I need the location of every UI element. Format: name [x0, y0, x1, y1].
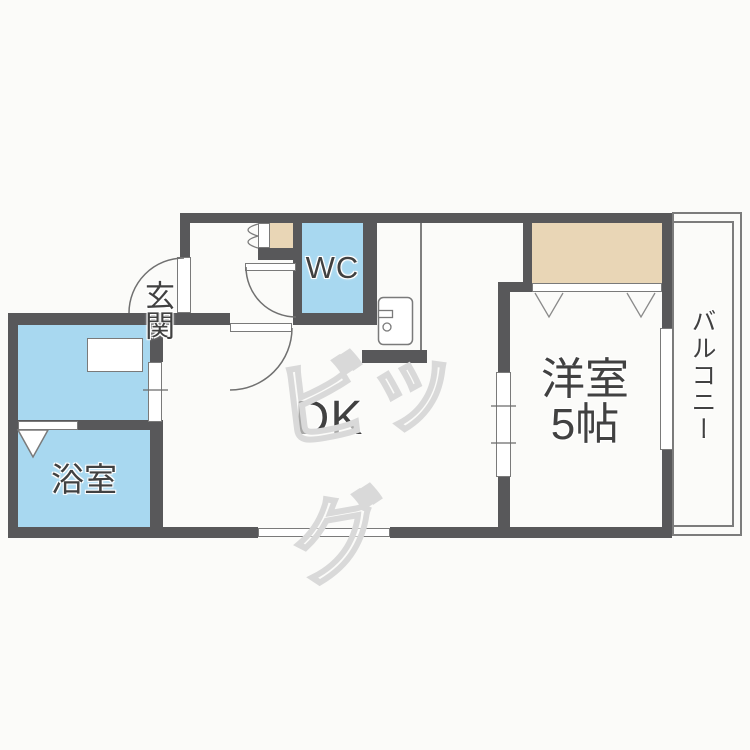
wc-label: WC: [302, 250, 363, 286]
closet-folding-mark-left: [535, 293, 563, 317]
dk-label: DK: [283, 391, 375, 446]
closet-folding-mark-right: [627, 293, 655, 317]
kitchen-faucet: [383, 323, 391, 331]
kitchen-sink-soap-dish: [379, 311, 393, 318]
entrance-label: 玄関: [137, 254, 175, 366]
bathroom-label: 浴室: [18, 453, 150, 501]
hall-door-arc: [246, 267, 296, 317]
western-room-label-line2: 5帖: [505, 402, 665, 447]
floor-plan: 玄関 WC DK 浴室 洋室 5帖 バルコニー ビッグ: [0, 0, 750, 750]
kitchen-sink: [379, 298, 413, 345]
dk-door-arc: [230, 328, 292, 390]
western-room-label-line1: 洋室: [505, 357, 665, 402]
balcony-label: バルコニー: [690, 300, 720, 450]
western-room-label: 洋室 5帖: [505, 357, 665, 447]
shoe-cabinet-door-arcs: [248, 224, 258, 248]
